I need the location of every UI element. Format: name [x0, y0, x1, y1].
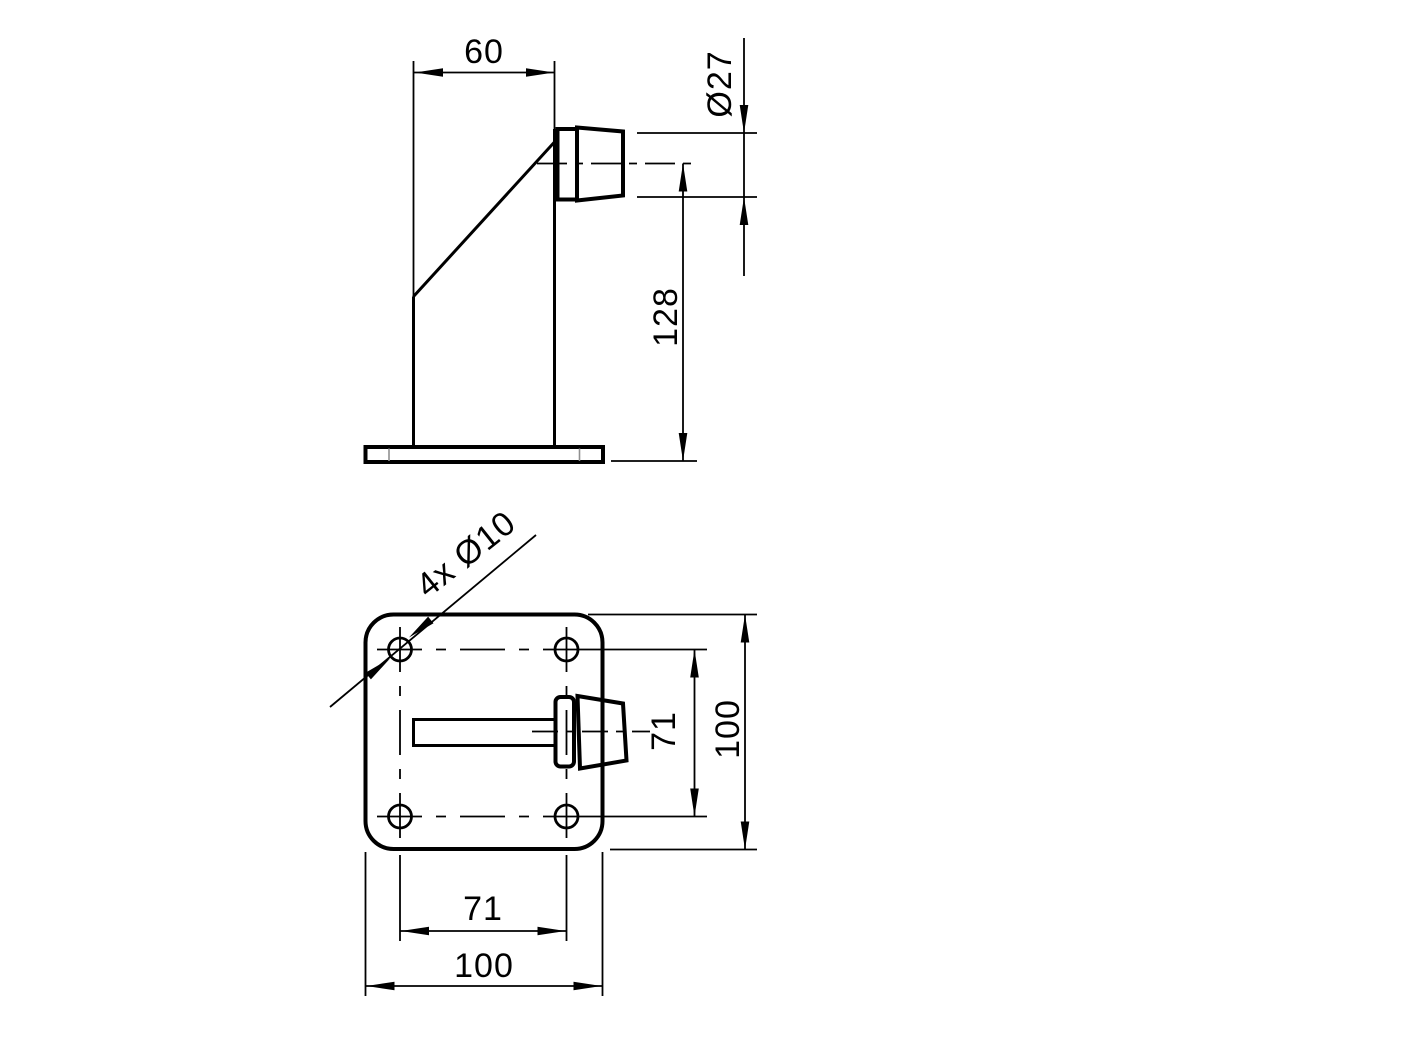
dimension-label-plate-width: 100	[454, 947, 514, 985]
arrowhead	[401, 927, 429, 936]
arrowhead	[679, 433, 688, 461]
dimension-71-vertical: 71	[588, 650, 707, 817]
drawing-canvas: 60 Ø27 128	[0, 0, 1417, 1063]
dimension-label-plate-height: 100	[709, 699, 747, 759]
dimension-label-height: 128	[647, 287, 685, 347]
post-diagonal-edge	[414, 142, 555, 297]
arrowhead	[526, 68, 554, 77]
dimension-diameter-27: Ø27	[637, 38, 757, 276]
dimension-71-horizontal: 71	[400, 855, 567, 941]
dimension-label-buffer-diameter: Ø27	[701, 50, 739, 117]
arrowhead	[741, 822, 750, 850]
arrowhead	[415, 68, 443, 77]
arrowhead	[741, 615, 750, 643]
arrowhead	[690, 789, 699, 817]
arrowhead	[366, 659, 391, 680]
dimension-label-hole-spacing-horizontal: 71	[463, 890, 503, 928]
plan-view: 4x Ø10 71 100 71	[330, 504, 757, 996]
arrowhead	[679, 164, 688, 192]
arrowhead	[409, 617, 434, 638]
arrowhead	[367, 982, 395, 991]
arrowhead	[740, 105, 749, 133]
side-view: 60 Ø27 128	[366, 33, 758, 462]
base-plate-side	[366, 447, 604, 462]
arrowhead	[740, 197, 749, 225]
dimension-label-top-width: 60	[464, 33, 504, 71]
arrowhead	[690, 650, 699, 678]
post-plan	[414, 720, 556, 746]
dimension-label-hole-spacing-vertical: 71	[645, 711, 683, 751]
dimension-128: 128	[611, 164, 697, 462]
arrowhead	[538, 927, 566, 936]
holes-callout: 4x Ø10	[330, 504, 536, 707]
arrowhead	[574, 982, 602, 991]
technical-drawing: 60 Ø27 128	[0, 0, 1417, 1063]
holes-callout-label: 4x Ø10	[409, 504, 523, 606]
